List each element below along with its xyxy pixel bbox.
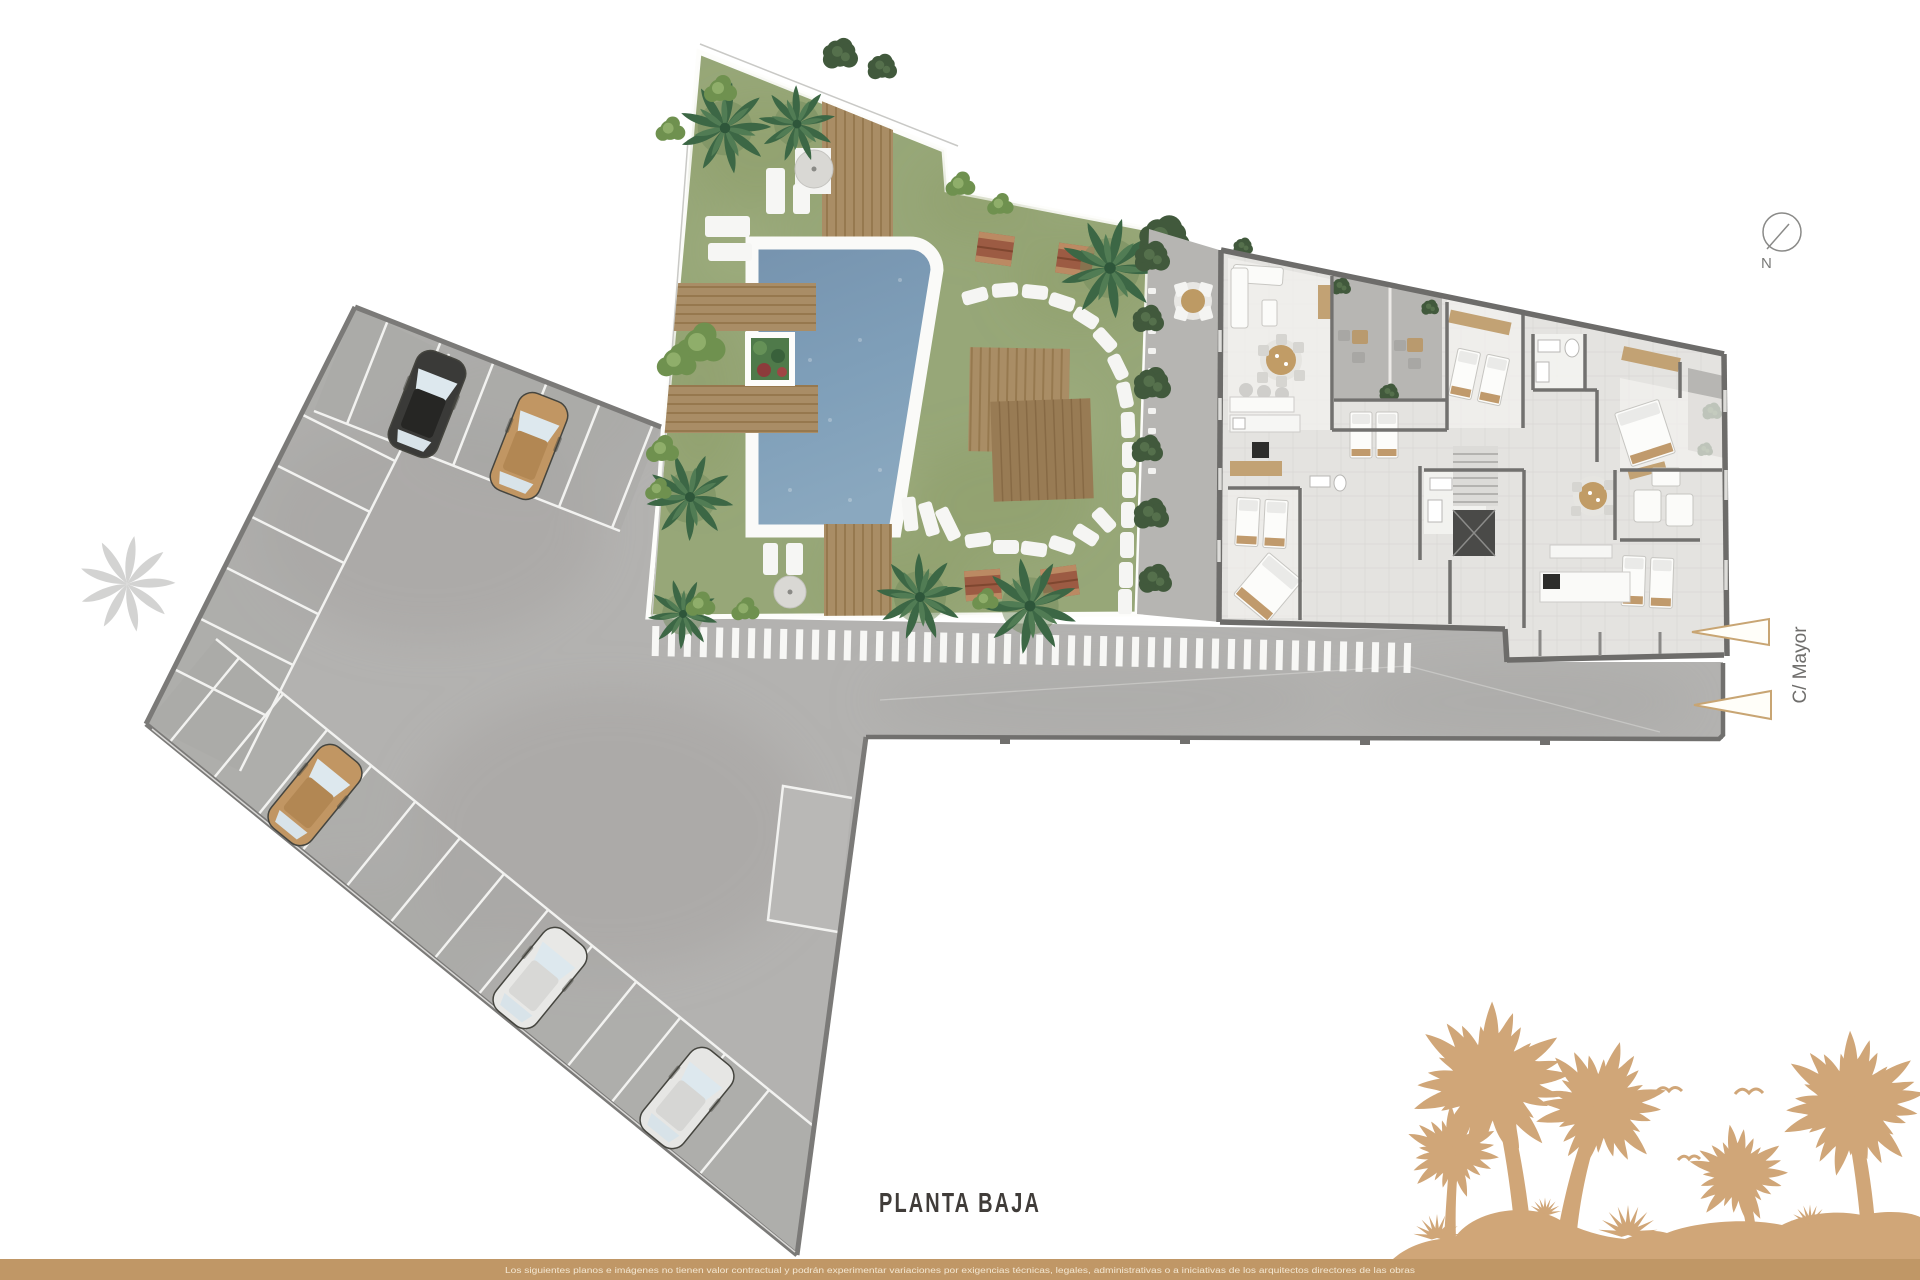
svg-text:PLANTA BAJA: PLANTA BAJA <box>879 1187 1041 1218</box>
svg-text:Los siguientes planos e imágen: Los siguientes planos e imágenes no tien… <box>505 1266 1415 1275</box>
svg-text:N: N <box>1761 255 1772 272</box>
svg-text:C/ Mayor: C/ Mayor <box>1790 626 1811 704</box>
